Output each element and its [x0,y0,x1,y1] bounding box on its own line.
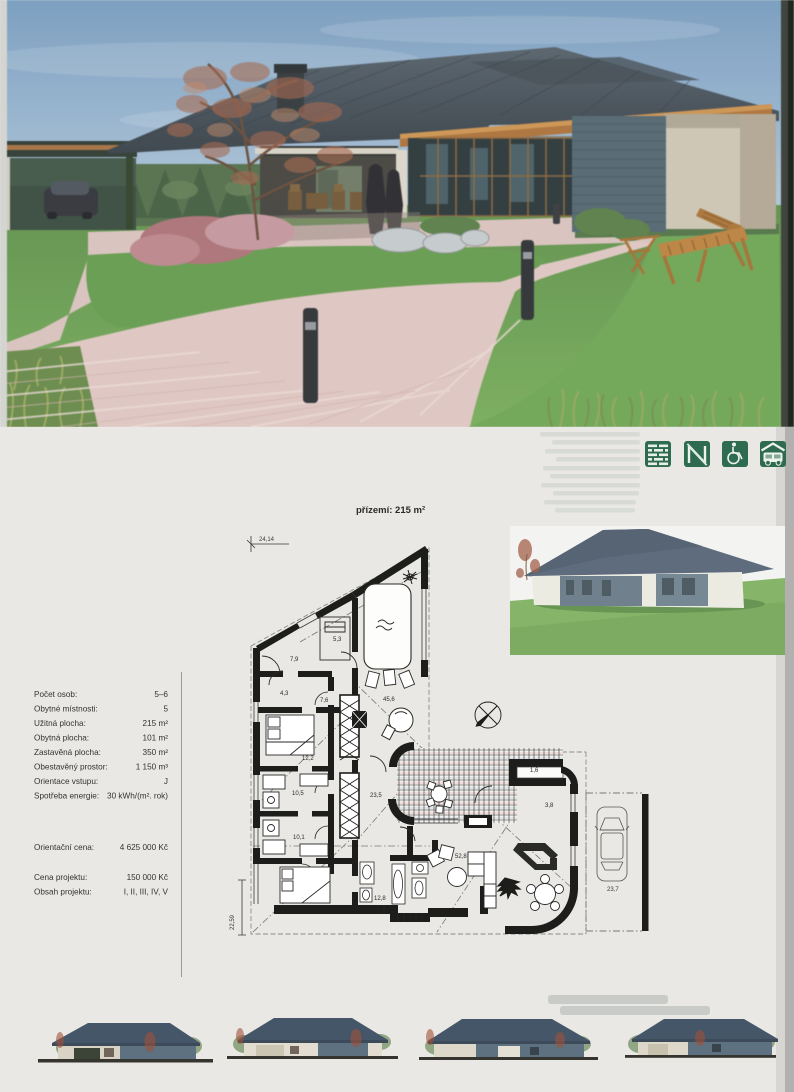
svg-text:Obestavěný prostor:: Obestavěný prostor: [34,763,108,772]
svg-text:Orientace vstupu:: Orientace vstupu: [34,777,98,786]
svg-text:Obytné místnosti:: Obytné místnosti: [34,705,98,714]
svg-text:Užitná plocha:: Užitná plocha: [34,719,86,728]
svg-text:23,7: 23,7 [607,887,619,893]
svg-text:Zastavěná plocha:: Zastavěná plocha: [34,748,101,757]
svg-text:Spotřeba energie:: Spotřeba energie: [34,792,99,801]
svg-text:4,3: 4,3 [280,691,289,697]
svg-text:I, II, III, IV, V: I, II, III, IV, V [124,888,169,897]
svg-text:Obytná plocha:: Obytná plocha: [34,734,89,743]
svg-text:12,2: 12,2 [302,756,314,762]
svg-text:1 150 m³: 1 150 m³ [136,763,169,772]
svg-text:Orientační cena:: Orientační cena: [34,843,94,852]
svg-text:101 m²: 101 m² [143,734,169,743]
svg-text:12,8: 12,8 [374,896,386,902]
svg-text:7,9: 7,9 [290,657,299,663]
svg-text:Počet osob:: Počet osob: [34,690,77,699]
svg-text:5,3: 5,3 [333,637,342,643]
svg-text:J: J [164,777,168,786]
svg-text:10,1: 10,1 [293,835,305,841]
svg-text:10,5: 10,5 [292,791,304,797]
svg-text:Cena projektu:: Cena projektu: [34,873,87,882]
svg-text:23,5: 23,5 [370,793,382,799]
svg-text:7,6: 7,6 [320,698,329,704]
svg-text:350 m²: 350 m² [143,748,169,757]
svg-text:4 625 000 Kč: 4 625 000 Kč [120,843,168,852]
svg-text:5: 5 [163,705,168,714]
svg-text:30 kWh/(m². rok): 30 kWh/(m². rok) [107,792,168,801]
svg-text:přízemí: 215 m²: přízemí: 215 m² [356,505,425,516]
svg-text:150 000 Kč: 150 000 Kč [127,873,168,882]
svg-text:45,6: 45,6 [383,697,395,703]
svg-text:22,59: 22,59 [230,914,236,930]
svg-text:215 m²: 215 m² [143,719,169,728]
svg-text:3,8: 3,8 [545,803,554,809]
svg-text:52,8: 52,8 [455,854,467,860]
svg-text:24,14: 24,14 [259,537,275,543]
svg-text:5–6: 5–6 [154,690,168,699]
svg-text:Obsah projektu:: Obsah projektu: [34,888,92,897]
svg-text:1,6: 1,6 [530,768,539,774]
